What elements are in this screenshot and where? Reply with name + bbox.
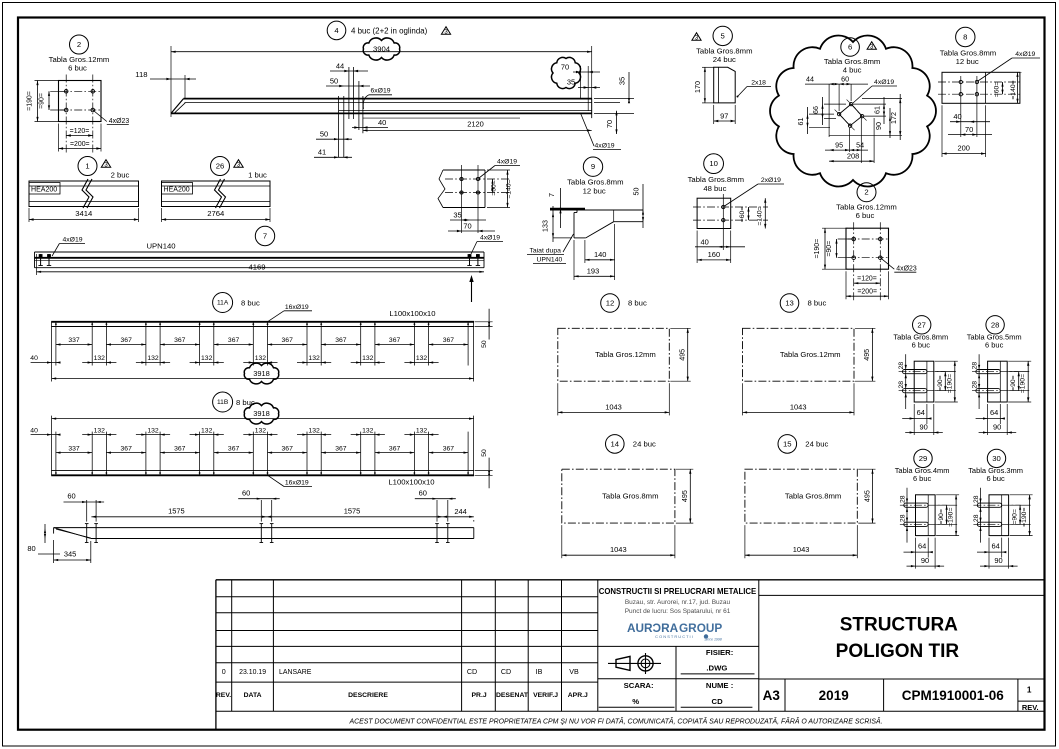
svg-text:1: 1 — [1027, 686, 1032, 695]
svg-text:44: 44 — [806, 75, 814, 83]
svg-text:L100x100x10: L100x100x10 — [388, 478, 434, 487]
svg-text:367: 367 — [174, 337, 186, 344]
svg-text:1 buc: 1 buc — [248, 171, 267, 180]
svg-text:Buzau, str. Aurorei, nr.17, ju: Buzau, str. Aurorei, nr.17, jud. Buzau — [625, 599, 731, 606]
svg-text:367: 367 — [282, 337, 294, 344]
svg-text:70: 70 — [463, 222, 471, 231]
svg-text:4 buc: 4 buc — [843, 66, 862, 75]
svg-text:2: 2 — [77, 40, 81, 49]
svg-text:132: 132 — [201, 427, 213, 434]
svg-text:90: 90 — [994, 556, 1002, 565]
svg-text:Since 1998: Since 1998 — [704, 638, 722, 642]
svg-text:40: 40 — [30, 427, 38, 434]
svg-text:2764: 2764 — [207, 209, 225, 218]
svg-text:50: 50 — [481, 340, 488, 348]
svg-text:244: 244 — [454, 507, 466, 516]
svg-text:UPN140: UPN140 — [537, 257, 563, 264]
svg-text:28: 28 — [973, 495, 980, 503]
svg-text:4xØ19: 4xØ19 — [874, 79, 894, 86]
svg-text:367: 367 — [228, 445, 240, 452]
svg-text:24 buc: 24 buc — [713, 55, 736, 64]
svg-text:FISIER:: FISIER: — [706, 648, 733, 657]
svg-text:160: 160 — [708, 250, 720, 259]
svg-text:132: 132 — [416, 427, 428, 434]
svg-text:CD: CD — [467, 668, 477, 676]
svg-text:REV.: REV. — [216, 692, 231, 699]
svg-text:CPM1910001-06: CPM1910001-06 — [902, 688, 1005, 703]
svg-text:=140=: =140= — [506, 179, 513, 198]
svg-text:CONSTRUCTII SI PRELUCRARI META: CONSTRUCTII SI PRELUCRARI METALICE — [599, 587, 757, 596]
svg-text:4xØ23: 4xØ23 — [109, 118, 130, 125]
svg-text:=190=: =190= — [1021, 508, 1028, 527]
svg-text:1043: 1043 — [610, 545, 627, 554]
svg-text:12: 12 — [606, 299, 615, 308]
svg-text:Tabla Gros.8mm: Tabla Gros.8mm — [785, 492, 841, 501]
svg-text:193: 193 — [587, 266, 599, 275]
svg-text:28: 28 — [972, 381, 979, 389]
svg-text:4xØ19: 4xØ19 — [1015, 51, 1035, 58]
svg-text:15: 15 — [783, 439, 792, 448]
svg-text:ACEST DOCUMENT CONFIDENTIAL ES: ACEST DOCUMENT CONFIDENTIAL ESTE PROPRIE… — [348, 716, 882, 725]
svg-text:6 buc: 6 buc — [986, 474, 1005, 483]
svg-text:28: 28 — [898, 381, 905, 389]
svg-text:200: 200 — [957, 144, 969, 153]
svg-text:Tabla Gros.12mm: Tabla Gros.12mm — [780, 350, 841, 359]
svg-text:11A: 11A — [217, 300, 229, 307]
svg-text:367: 367 — [389, 445, 401, 452]
svg-text:DESCRIERE: DESCRIERE — [348, 692, 388, 699]
svg-text:=60=: =60= — [739, 207, 746, 223]
svg-text:6 buc: 6 buc — [913, 474, 932, 483]
svg-text:54: 54 — [856, 141, 864, 149]
svg-text:495: 495 — [863, 349, 871, 361]
svg-text:140: 140 — [594, 250, 606, 259]
svg-text:41: 41 — [318, 148, 326, 157]
svg-text:118: 118 — [135, 70, 147, 79]
svg-text:61: 61 — [873, 106, 881, 114]
svg-text:48 buc: 48 buc — [703, 184, 726, 193]
svg-text:=90=: =90= — [937, 375, 944, 391]
svg-text:A3: A3 — [763, 688, 781, 703]
svg-text:6 buc: 6 buc — [912, 341, 931, 350]
svg-text:=90=: =90= — [826, 241, 833, 257]
svg-text:1043: 1043 — [790, 402, 807, 411]
svg-text:DESENAT: DESENAT — [496, 692, 529, 699]
svg-text:8 buc: 8 buc — [808, 299, 827, 308]
svg-text:90: 90 — [875, 122, 883, 130]
svg-text:REV.: REV. — [1022, 703, 1039, 712]
svg-text:2xØ19: 2xØ19 — [761, 177, 781, 184]
svg-text:367: 367 — [335, 445, 347, 452]
svg-text:4169: 4169 — [248, 262, 265, 271]
svg-text:97: 97 — [720, 111, 728, 120]
svg-text:1575: 1575 — [168, 506, 185, 515]
svg-text:IB: IB — [536, 668, 543, 676]
svg-text:172: 172 — [890, 112, 898, 124]
svg-text:4: 4 — [334, 26, 339, 35]
svg-text:367: 367 — [335, 337, 347, 344]
svg-text:44: 44 — [336, 61, 344, 70]
svg-text:132: 132 — [147, 355, 159, 362]
svg-text:4xØ19: 4xØ19 — [497, 159, 517, 166]
svg-text:%: % — [632, 697, 639, 706]
svg-text:4xØ19: 4xØ19 — [62, 237, 82, 244]
svg-text:61: 61 — [797, 118, 805, 126]
svg-text:29: 29 — [919, 454, 928, 463]
svg-text:1575: 1575 — [344, 506, 361, 515]
svg-text:=90=: =90= — [938, 509, 945, 525]
svg-text:170: 170 — [694, 81, 702, 93]
svg-text:60: 60 — [841, 75, 849, 83]
svg-text:=90=: =90= — [1010, 375, 1017, 391]
svg-text:HEA200: HEA200 — [164, 187, 190, 194]
svg-text:Tabla Gros.8mm: Tabla Gros.8mm — [602, 492, 658, 501]
svg-text:6 buc: 6 buc — [856, 211, 875, 220]
svg-text:6 buc: 6 buc — [985, 341, 1004, 350]
svg-text:40: 40 — [700, 237, 708, 246]
svg-text:90: 90 — [920, 423, 928, 432]
svg-text:90: 90 — [921, 556, 929, 565]
svg-text:SCARA:: SCARA: — [624, 681, 654, 690]
svg-text:4xØ23: 4xØ23 — [896, 266, 917, 273]
svg-text:95: 95 — [835, 141, 843, 149]
svg-text:=200=: =200= — [70, 141, 90, 148]
svg-text:7: 7 — [548, 193, 556, 197]
svg-text:L100x100x10: L100x100x10 — [389, 309, 435, 318]
svg-text:Punct de lucru: Sos Spatarului: Punct de lucru: Sos Spatarului, nr 61 — [625, 608, 731, 615]
svg-text:28: 28 — [900, 495, 907, 503]
svg-text:23.10.19: 23.10.19 — [239, 669, 266, 676]
svg-text:132: 132 — [308, 355, 320, 362]
svg-text:C O N S T R U C T I I: C O N S T R U C T I I — [655, 634, 693, 639]
svg-text:367: 367 — [443, 337, 455, 344]
svg-text:28: 28 — [898, 362, 905, 370]
svg-text:2019: 2019 — [819, 688, 849, 703]
svg-text:26: 26 — [216, 162, 225, 171]
svg-text:367: 367 — [174, 445, 186, 452]
svg-text:28: 28 — [973, 514, 980, 522]
svg-text:5: 5 — [721, 31, 725, 40]
svg-text:132: 132 — [255, 355, 267, 362]
svg-text:367: 367 — [389, 337, 401, 344]
svg-text:STRUCTURA: STRUCTURA — [840, 615, 958, 636]
svg-text:Tabla Gros.12mm: Tabla Gros.12mm — [595, 350, 656, 359]
svg-text:APR.J: APR.J — [568, 692, 588, 699]
svg-text:132: 132 — [94, 427, 106, 434]
svg-text:495: 495 — [863, 490, 871, 502]
svg-text:345: 345 — [64, 550, 76, 559]
svg-text:367: 367 — [282, 445, 294, 452]
svg-text:8 buc: 8 buc — [236, 398, 255, 407]
svg-text:132: 132 — [147, 427, 159, 434]
svg-text:6: 6 — [848, 43, 852, 52]
svg-text:132: 132 — [94, 355, 106, 362]
svg-text:VERIF.J: VERIF.J — [533, 692, 558, 699]
svg-text:DATA: DATA — [244, 692, 262, 699]
svg-text:8 buc: 8 buc — [241, 299, 260, 308]
svg-text:132: 132 — [308, 427, 320, 434]
svg-text:90: 90 — [993, 423, 1001, 432]
svg-text:=190=: =190= — [946, 374, 953, 393]
svg-text:6 buc: 6 buc — [68, 64, 87, 73]
svg-text:2 buc: 2 buc — [111, 171, 130, 180]
svg-text:Taiat dupa: Taiat dupa — [529, 248, 561, 255]
svg-text:16xØ19: 16xØ19 — [285, 480, 309, 487]
svg-text:367: 367 — [121, 337, 133, 344]
svg-text:35: 35 — [453, 211, 461, 220]
svg-text:8: 8 — [963, 33, 967, 42]
svg-text:=60=: =60= — [993, 82, 1000, 98]
svg-text:30: 30 — [992, 454, 1001, 463]
svg-text:28: 28 — [900, 514, 907, 522]
svg-text:=120=: =120= — [857, 276, 877, 283]
svg-text:24 buc: 24 buc — [805, 440, 828, 449]
svg-text:3414: 3414 — [75, 209, 93, 218]
svg-text:367: 367 — [443, 445, 455, 452]
svg-text:NUME :: NUME : — [706, 681, 733, 690]
svg-text:60: 60 — [67, 492, 75, 501]
svg-text:10: 10 — [709, 159, 718, 168]
svg-text:28: 28 — [991, 320, 1000, 329]
svg-text:35: 35 — [567, 78, 575, 87]
svg-text:12 buc: 12 buc — [956, 57, 979, 66]
svg-text:132: 132 — [362, 427, 374, 434]
svg-text:=90=: =90= — [39, 93, 46, 109]
svg-text:8 buc: 8 buc — [628, 299, 647, 308]
svg-text:132: 132 — [201, 355, 213, 362]
svg-text:50: 50 — [320, 129, 328, 138]
svg-text:60: 60 — [242, 488, 250, 497]
svg-text:1: 1 — [85, 162, 89, 171]
svg-text:4xØ19: 4xØ19 — [595, 143, 615, 150]
svg-text:9: 9 — [591, 162, 595, 171]
svg-text:LANSARE: LANSARE — [279, 669, 312, 676]
svg-text:337: 337 — [68, 445, 80, 452]
svg-text:132: 132 — [255, 427, 267, 434]
svg-text:PR.J: PR.J — [472, 692, 487, 699]
svg-text:16xØ19: 16xØ19 — [285, 304, 309, 311]
svg-text:337: 337 — [68, 337, 80, 344]
svg-text:50: 50 — [481, 449, 488, 457]
svg-text:208: 208 — [847, 152, 859, 161]
svg-text:VB: VB — [569, 668, 579, 676]
svg-text:=90=: =90= — [1012, 509, 1019, 525]
svg-text:40: 40 — [953, 112, 961, 121]
svg-text:132: 132 — [416, 355, 428, 362]
svg-text:=120=: =120= — [70, 128, 90, 135]
svg-text:64: 64 — [990, 408, 998, 417]
svg-text:40: 40 — [30, 355, 38, 362]
svg-text:70: 70 — [561, 63, 569, 72]
svg-text:2x18: 2x18 — [751, 80, 766, 87]
svg-text:0: 0 — [222, 668, 226, 676]
svg-text:70: 70 — [965, 125, 973, 134]
svg-text:=200=: =200= — [857, 289, 877, 296]
svg-text:495: 495 — [681, 490, 689, 502]
svg-text:Tabla Gros.8mm: Tabla Gros.8mm — [567, 178, 623, 187]
svg-text:66: 66 — [812, 106, 820, 114]
svg-text:60: 60 — [419, 488, 427, 497]
svg-text:40: 40 — [378, 118, 386, 127]
svg-text:132: 132 — [362, 355, 374, 362]
svg-text:64: 64 — [991, 542, 999, 551]
svg-text:Tabla Gros.8mm: Tabla Gros.8mm — [688, 175, 744, 184]
svg-text:=190=: =190= — [1020, 374, 1027, 393]
svg-text:14: 14 — [611, 439, 620, 448]
svg-text:2120: 2120 — [467, 119, 484, 128]
svg-text:6xØ19: 6xØ19 — [370, 88, 390, 95]
svg-text:12 buc: 12 buc — [583, 187, 606, 196]
svg-text:367: 367 — [228, 337, 240, 344]
svg-text:=190=: =190= — [27, 91, 34, 111]
svg-text:50: 50 — [330, 77, 338, 86]
svg-text:3918: 3918 — [253, 409, 270, 418]
svg-text:64: 64 — [917, 408, 925, 417]
svg-text:=190=: =190= — [948, 508, 955, 527]
svg-text:50: 50 — [632, 188, 640, 196]
svg-text:27: 27 — [917, 320, 926, 329]
svg-text:24 buc: 24 buc — [633, 440, 656, 449]
svg-text:CD: CD — [501, 668, 511, 676]
svg-text:367: 367 — [121, 445, 133, 452]
svg-text:495: 495 — [679, 349, 687, 361]
svg-text:POLIGON TIR: POLIGON TIR — [836, 641, 960, 662]
svg-text:2: 2 — [864, 188, 868, 197]
svg-text:7: 7 — [263, 232, 267, 241]
svg-text:3918: 3918 — [253, 369, 270, 378]
svg-text:4xØ19: 4xØ19 — [480, 235, 500, 242]
svg-text:13: 13 — [785, 299, 794, 308]
svg-text:3904: 3904 — [373, 45, 391, 54]
svg-text:35: 35 — [618, 77, 627, 85]
svg-text:=140=: =140= — [757, 206, 764, 225]
svg-text:133: 133 — [542, 220, 550, 232]
svg-text:CD: CD — [712, 697, 724, 706]
svg-text:HEA200: HEA200 — [31, 187, 57, 194]
svg-text:70: 70 — [605, 120, 614, 128]
svg-text:=140=: =140= — [1010, 80, 1017, 99]
svg-text:1043: 1043 — [605, 402, 622, 411]
svg-text:=190=: =190= — [814, 239, 821, 259]
svg-text:80: 80 — [27, 544, 35, 553]
svg-text:28: 28 — [972, 362, 979, 370]
svg-text:4 buc (2+2 in oglinda): 4 buc (2+2 in oglinda) — [351, 27, 428, 36]
svg-text:1043: 1043 — [793, 545, 810, 554]
svg-text:11B: 11B — [217, 399, 229, 406]
svg-text:64: 64 — [918, 542, 926, 551]
svg-text:.DWG: .DWG — [706, 664, 727, 673]
svg-text:UPN140: UPN140 — [146, 241, 175, 250]
